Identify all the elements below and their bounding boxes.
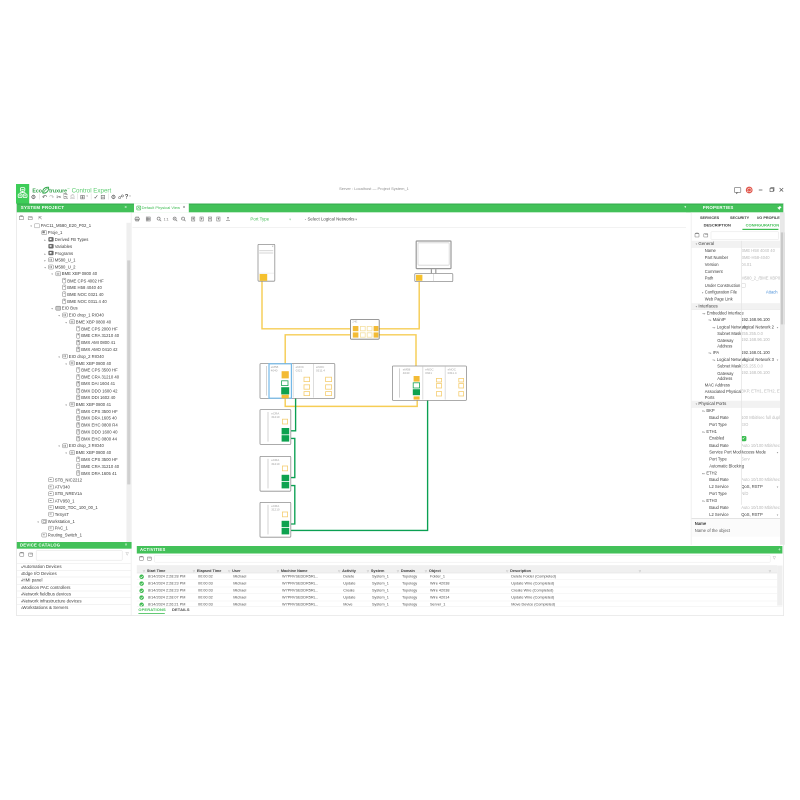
svg-text:-: -	[182, 217, 183, 221]
